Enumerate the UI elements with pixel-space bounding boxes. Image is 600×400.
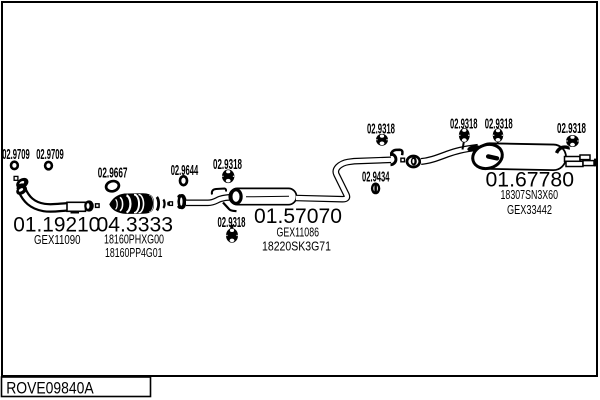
svg-text:02.9318: 02.9318: [557, 120, 586, 137]
svg-text:02.9667: 02.9667: [98, 165, 128, 182]
svg-text:GEX33442: GEX33442: [507, 202, 552, 217]
svg-text:18220SK3G71: 18220SK3G71: [262, 238, 331, 253]
svg-text:GEX11086: GEX11086: [277, 224, 320, 239]
svg-text:ROVE09840A: ROVE09840A: [6, 380, 94, 398]
svg-text:02.9709: 02.9709: [36, 146, 64, 163]
svg-text:GEX11090: GEX11090: [34, 232, 81, 247]
svg-text:18160PP4G01: 18160PP4G01: [105, 245, 163, 260]
svg-text:18307SN3X60: 18307SN3X60: [501, 187, 559, 202]
svg-text:02.9709: 02.9709: [2, 146, 30, 163]
